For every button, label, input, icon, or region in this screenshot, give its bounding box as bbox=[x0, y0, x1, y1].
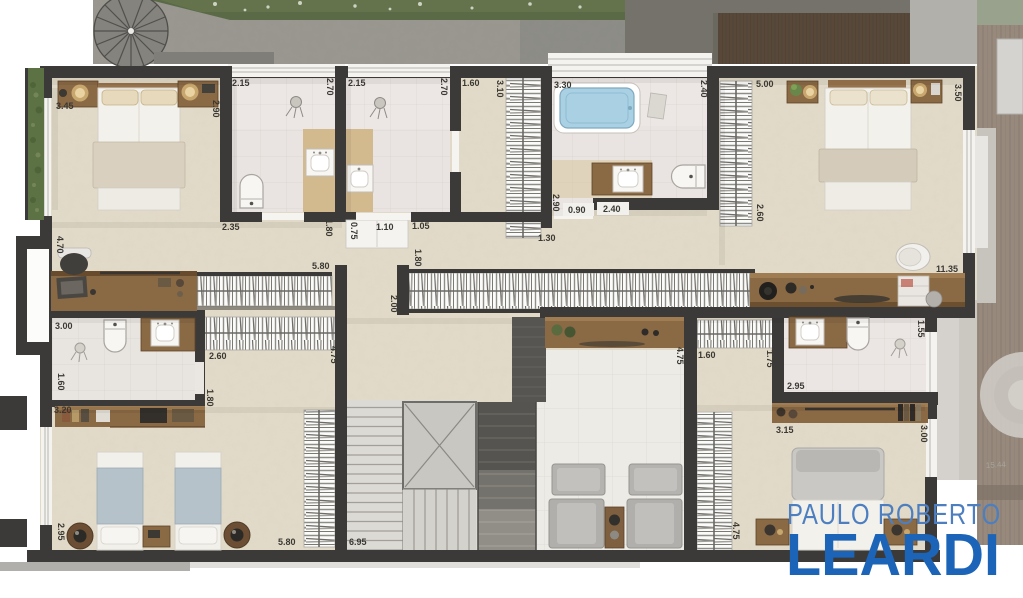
svg-text:1.60: 1.60 bbox=[462, 78, 480, 88]
svg-text:2.70: 2.70 bbox=[439, 78, 449, 96]
svg-text:1.80: 1.80 bbox=[205, 389, 215, 407]
svg-text:3.00: 3.00 bbox=[55, 321, 73, 331]
svg-text:1.80: 1.80 bbox=[324, 219, 334, 237]
svg-text:5.00: 5.00 bbox=[756, 79, 774, 89]
svg-text:0.75: 0.75 bbox=[349, 222, 359, 240]
svg-text:3.45: 3.45 bbox=[56, 101, 74, 111]
svg-text:4.75: 4.75 bbox=[329, 346, 339, 364]
svg-text:2.60: 2.60 bbox=[209, 351, 227, 361]
svg-text:3.15: 3.15 bbox=[776, 425, 794, 435]
svg-text:3.10: 3.10 bbox=[495, 80, 505, 98]
svg-text:2.95: 2.95 bbox=[56, 523, 66, 541]
svg-text:2.90: 2.90 bbox=[211, 100, 221, 118]
svg-text:1.80: 1.80 bbox=[413, 249, 423, 267]
svg-text:2.70: 2.70 bbox=[325, 78, 335, 96]
svg-text:4.75: 4.75 bbox=[675, 347, 685, 365]
svg-text:3.30: 3.30 bbox=[554, 80, 572, 90]
svg-text:3.50: 3.50 bbox=[953, 84, 963, 102]
svg-text:1.30: 1.30 bbox=[538, 233, 556, 243]
svg-text:11.35: 11.35 bbox=[936, 264, 958, 274]
svg-text:1.05: 1.05 bbox=[412, 221, 430, 231]
svg-text:2.60: 2.60 bbox=[755, 204, 765, 222]
svg-text:1.60: 1.60 bbox=[698, 350, 716, 360]
svg-text:1.75: 1.75 bbox=[765, 350, 775, 368]
svg-text:1.60: 1.60 bbox=[56, 373, 66, 391]
svg-text:5.80: 5.80 bbox=[312, 261, 330, 271]
svg-text:1.10: 1.10 bbox=[376, 222, 394, 232]
svg-text:6.95: 6.95 bbox=[349, 537, 367, 547]
svg-text:2.90: 2.90 bbox=[551, 194, 561, 212]
svg-text:4.70: 4.70 bbox=[55, 236, 65, 254]
svg-text:1.55: 1.55 bbox=[916, 320, 926, 338]
svg-text:3.00: 3.00 bbox=[919, 425, 929, 443]
svg-text:2.35: 2.35 bbox=[222, 222, 240, 232]
svg-text:5.80: 5.80 bbox=[278, 537, 296, 547]
svg-text:2.15: 2.15 bbox=[348, 78, 366, 88]
svg-text:2.95: 2.95 bbox=[787, 381, 805, 391]
svg-text:LEARDI: LEARDI bbox=[786, 522, 1000, 588]
svg-text:3.20: 3.20 bbox=[54, 405, 72, 415]
svg-text:4.75: 4.75 bbox=[731, 522, 741, 540]
svg-text:2.40: 2.40 bbox=[699, 80, 709, 98]
svg-text:2.15: 2.15 bbox=[232, 78, 250, 88]
svg-text:2.00: 2.00 bbox=[389, 295, 399, 313]
svg-text:0.90: 0.90 bbox=[568, 205, 586, 215]
svg-text:15.44: 15.44 bbox=[986, 460, 1007, 470]
svg-text:2.40: 2.40 bbox=[603, 204, 621, 214]
